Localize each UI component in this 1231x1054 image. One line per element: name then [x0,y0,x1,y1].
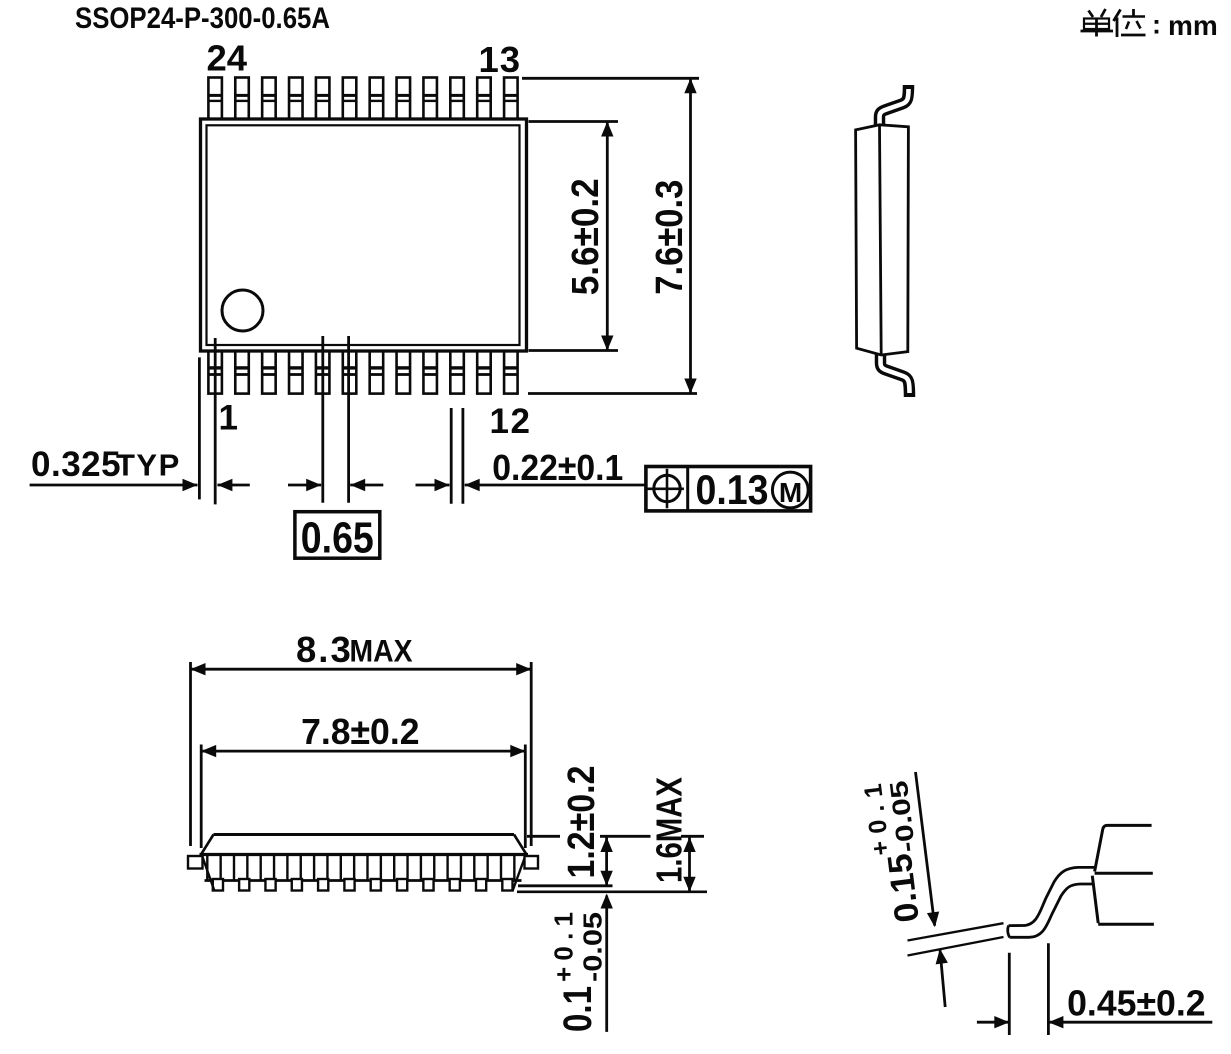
svg-text:0.65: 0.65 [301,514,374,563]
svg-text:7.6±0.3: 7.6±0.3 [649,180,691,295]
svg-text:-0.05: -0.05 [578,912,608,982]
svg-text:24: 24 [206,38,247,79]
svg-text:mm: mm [1168,10,1218,41]
svg-text:0.22±0.1: 0.22±0.1 [492,447,623,488]
svg-text:SSOP24-P-300-0.65A: SSOP24-P-300-0.65A [75,2,330,35]
svg-text:0.15: 0.15 [881,851,927,924]
svg-text:0.325: 0.325 [31,445,121,484]
svg-text:12: 12 [490,402,532,441]
svg-text:MAX: MAX [350,633,413,669]
svg-text:0.45±0.2: 0.45±0.2 [1067,983,1206,1024]
svg-text:0.13: 0.13 [696,466,769,513]
svg-text:1.2±0.2: 1.2±0.2 [561,766,603,879]
svg-text:1.6MAX: 1.6MAX [649,777,690,883]
svg-text::: : [1152,10,1161,40]
svg-text:1: 1 [218,399,237,438]
svg-text:5.6±0.2: 5.6±0.2 [565,178,607,295]
svg-text:8.3: 8.3 [296,629,353,670]
svg-text:13: 13 [479,39,522,80]
svg-text:+0.1: +0.1 [549,912,579,982]
svg-text:TYP: TYP [116,448,181,483]
svg-text:M: M [779,477,802,508]
svg-text:0.1: 0.1 [556,986,600,1032]
svg-text:7.8±0.2: 7.8±0.2 [301,711,419,752]
